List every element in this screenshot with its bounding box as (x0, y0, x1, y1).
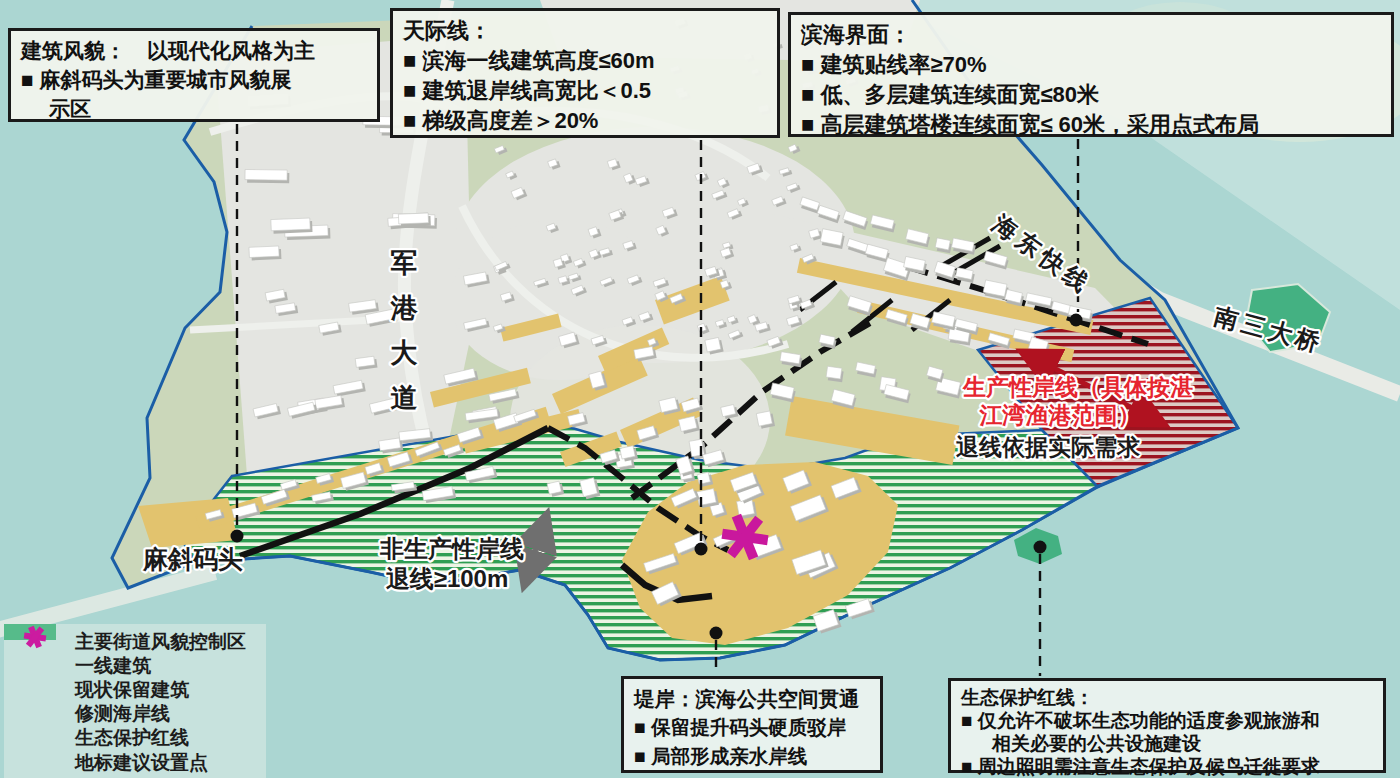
info-box-architecture-style: 建筑风貌： 以现代化风格为主 ■ 麻斜码头为重要城市风貌展 示区 (8, 28, 380, 122)
legend-item-landmark-point: 地标建议设置点 (10, 750, 260, 776)
label-nonproductive-setback: 退线≥100m (386, 565, 509, 592)
legend-label: 修测海岸线 (75, 701, 170, 727)
info-box-line: ■ 保留提升码头硬质驳岸 (634, 713, 870, 742)
info-box-line: 示区 (21, 94, 367, 123)
info-box-title: 建筑风貌： 以现代化风格为主 (21, 36, 367, 65)
label-majie-wharf: 麻斜码头 (142, 545, 243, 573)
label-junggang-avenue: 道 (391, 383, 418, 413)
label-productive-shoreline: 生产性岸线（具体按湛 (962, 374, 1193, 400)
legend: 主要街道风貌控制区 一线建筑 现状保留建筑 修测海岸线 生态保护红线 地标建议设… (4, 624, 266, 778)
legend-label: 地标建议设置点 (75, 750, 208, 776)
legend-item-surveyed-coastline: 修测海岸线 (10, 702, 260, 726)
info-box-seafront-interface: 滨海界面： ■ 建筑贴线率≥70% ■ 低、多层建筑连续面宽≤80米 ■ 高层建… (788, 12, 1394, 137)
info-box-line: ■ 高层建筑塔楼连续面宽≤ 60米，采用点式布局 (801, 110, 1381, 140)
info-box-line: ■ 建筑贴线率≥70% (801, 50, 1381, 80)
info-box-line: ■ 滨海一线建筑高度≤60m (403, 46, 767, 76)
label-junggang-avenue: 港 (390, 293, 419, 323)
legend-label: 生态保护红线 (75, 725, 189, 751)
info-box-embankment: 堤岸：滨海公共空间贯通 ■ 保留提升码头硬质驳岸 ■ 局部形成亲水岸线 (621, 676, 883, 773)
label-junggang-avenue: 大 (391, 338, 418, 368)
planning-map-figure: 麻斜码头 军 港 大 道 海东快线 南三大桥 生产性岸线（具体按湛 江湾渔港范围… (0, 0, 1400, 778)
info-box-title: 生态保护红线： (961, 686, 1373, 709)
info-box-skyline: 天际线： ■ 滨海一线建筑高度≤60m ■ 建筑退岸线高宽比＜0.5 ■ 梯级高… (390, 8, 780, 138)
legend-item-retained-building: 现状保留建筑 (10, 678, 260, 702)
legend-label: 现状保留建筑 (75, 677, 189, 703)
info-box-line: ■ 局部形成亲水岸线 (634, 742, 870, 771)
legend-label: 主要街道风貌控制区 (75, 629, 246, 655)
info-box-line: ■ 梯级高度差＞20% (403, 106, 767, 136)
landmark-asterisk-icon (4, 624, 56, 650)
info-box-line: ■ 建筑退岸线高宽比＜0.5 (403, 76, 767, 106)
info-box-title: 滨海界面： (801, 20, 1381, 50)
info-box-line: ■ 仅允许不破坏生态功能的适度参观旅游和 (961, 709, 1373, 732)
info-box-line: ■ 麻斜码头为重要城市风貌展 (21, 65, 367, 94)
label-setback-by-need: 退线依据实际需求 (955, 434, 1141, 460)
info-box-line: ■ 低、多层建筑连续面宽≤80米 (801, 80, 1381, 110)
label-junggang-avenue: 军 (391, 248, 418, 278)
info-box-title: 天际线： (403, 16, 767, 46)
label-productive-shoreline: 江湾渔港范围） (979, 402, 1141, 428)
legend-label: 一线建筑 (75, 653, 151, 679)
info-box-ecology-redline: 生态保护红线： ■ 仅允许不破坏生态功能的适度参观旅游和 相关必要的公共设施建设… (948, 678, 1386, 773)
info-box-title: 堤岸：滨海公共空间贯通 (634, 684, 870, 713)
legend-item-frontline-building: 一线建筑 (10, 654, 260, 678)
info-box-line: ■ 周边照明需注意生态保护及候鸟迁徙要求 (961, 755, 1373, 778)
legend-item-eco-redline: 生态保护红线 (10, 726, 260, 750)
label-nonproductive-shoreline: 非生产性岸线 (379, 535, 524, 562)
info-box-line: 相关必要的公共设施建设 (961, 732, 1373, 755)
